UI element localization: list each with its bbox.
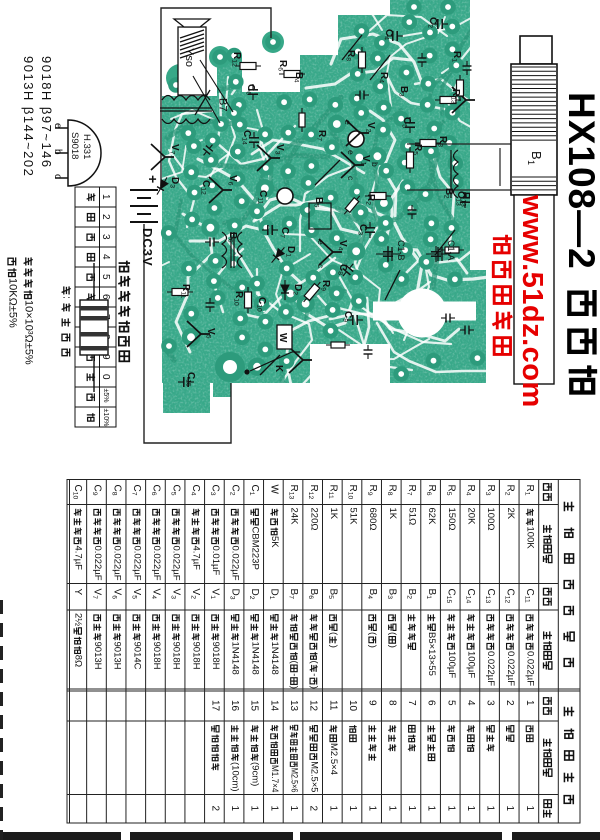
svg-text:2: 2: [504, 700, 515, 706]
svg-text:R: R: [446, 485, 457, 492]
svg-text:B7: B7: [216, 98, 228, 111]
svg-text:R: R: [367, 485, 378, 492]
svg-text:R: R: [504, 485, 515, 492]
svg-text:): ): [387, 645, 398, 648]
svg-text:11: 11: [523, 596, 530, 603]
svg-text:C: C: [279, 227, 290, 234]
svg-text:13: 13: [450, 96, 457, 104]
svg-text:Yso: Yso: [183, 48, 195, 67]
svg-text:1: 1: [367, 806, 378, 812]
svg-text:C: C: [241, 130, 252, 137]
svg-text:2: 2: [229, 492, 236, 496]
svg-text:0.022µF: 0.022µF: [505, 651, 516, 686]
svg-text:1N4148: 1N4148: [269, 642, 280, 675]
svg-text:W: W: [269, 485, 280, 495]
svg-text:3: 3: [229, 596, 236, 600]
svg-text:D: D: [229, 589, 240, 596]
svg-text:10: 10: [347, 492, 354, 500]
svg-text:1: 1: [100, 194, 111, 200]
svg-text:4: 4: [464, 492, 471, 496]
svg-text:5: 5: [412, 151, 419, 155]
svg-text:C: C: [229, 485, 240, 492]
svg-text:12: 12: [504, 596, 511, 604]
svg-text:6: 6: [227, 182, 234, 186]
svg-text:(: (: [367, 632, 378, 636]
svg-text:): ): [328, 645, 339, 648]
svg-text:6: 6: [150, 492, 157, 496]
svg-text:5K: 5K: [269, 536, 280, 548]
svg-text:R: R: [288, 485, 299, 492]
svg-text:C: C: [170, 485, 181, 492]
svg-text:9: 9: [366, 492, 373, 496]
svg-text:11: 11: [327, 700, 338, 711]
svg-text:1: 1: [386, 806, 397, 812]
svg-text:7: 7: [288, 595, 295, 599]
svg-text:2: 2: [100, 214, 111, 220]
svg-text:2½: 2½: [72, 613, 83, 626]
svg-text:M2.5×5: M2.5×5: [309, 761, 320, 792]
svg-text:7: 7: [169, 151, 176, 155]
svg-text:C: C: [504, 589, 515, 596]
svg-text:1: 1: [347, 806, 358, 812]
svg-text:2: 2: [189, 595, 196, 599]
svg-text:7: 7: [316, 137, 323, 141]
svg-text:C1-A: C1-A: [446, 240, 456, 261]
svg-text:6: 6: [245, 91, 252, 95]
svg-text:8: 8: [386, 700, 397, 706]
svg-text:9: 9: [320, 287, 327, 291]
svg-text:5: 5: [170, 492, 177, 496]
svg-text:4.7µF: 4.7µF: [72, 546, 83, 571]
svg-text:5: 5: [100, 274, 111, 280]
svg-text:4: 4: [337, 247, 344, 251]
svg-text:6: 6: [425, 492, 432, 496]
svg-text:24K: 24K: [289, 508, 300, 526]
svg-text:0.022µF: 0.022µF: [112, 546, 123, 581]
svg-text:7: 7: [406, 700, 417, 706]
svg-text:1K: 1K: [328, 508, 339, 520]
svg-text:2: 2: [504, 492, 511, 496]
svg-text:13: 13: [288, 700, 299, 712]
svg-text:100K: 100K: [525, 527, 536, 550]
svg-text:0.022µF: 0.022µF: [151, 546, 162, 581]
svg-text:5: 5: [313, 204, 320, 208]
svg-text:680Ω: 680Ω: [367, 508, 378, 531]
svg-text:C: C: [342, 311, 353, 318]
svg-text:62K: 62K: [426, 508, 437, 526]
svg-text:9018H: 9018H: [171, 642, 182, 670]
svg-text:C: C: [337, 264, 348, 271]
svg-text:9018H: 9018H: [151, 642, 162, 670]
svg-text:13: 13: [288, 492, 295, 500]
svg-text:3: 3: [386, 595, 393, 599]
svg-text:C: C: [249, 485, 260, 492]
svg-text:1: 1: [426, 806, 437, 812]
svg-text:1: 1: [524, 806, 535, 812]
svg-text:10×10³Ω±5%: 10×10³Ω±5%: [22, 300, 34, 365]
svg-text:2: 2: [405, 595, 412, 599]
svg-text:10: 10: [347, 700, 358, 712]
svg-text:9018H β97~146: 9018H β97~146: [39, 56, 54, 169]
svg-text:15: 15: [249, 700, 260, 712]
svg-text:1: 1: [360, 162, 367, 166]
svg-text:9018H: 9018H: [210, 642, 221, 670]
svg-text:1: 1: [465, 806, 476, 812]
svg-text:1: 1: [285, 253, 292, 257]
svg-text:2: 2: [248, 596, 255, 600]
svg-text:3: 3: [484, 492, 491, 496]
svg-text:C: C: [210, 485, 221, 492]
svg-text:R: R: [406, 485, 417, 492]
svg-text:R: R: [328, 485, 339, 492]
svg-text:51Ω: 51Ω: [407, 508, 418, 526]
svg-text:100µF: 100µF: [446, 651, 457, 678]
svg-text:1: 1: [485, 806, 496, 812]
svg-text:3: 3: [100, 234, 111, 240]
svg-text:10: 10: [71, 492, 78, 500]
svg-text:0.022µF: 0.022µF: [230, 546, 241, 581]
svg-text:1: 1: [524, 700, 535, 706]
svg-text:10KΩ±5%: 10KΩ±5%: [6, 278, 18, 328]
svg-text:9018H: 9018H: [190, 642, 201, 670]
svg-text:-: -: [308, 673, 319, 676]
svg-text:0.022µF: 0.022µF: [525, 651, 536, 686]
svg-text:B5×13×55: B5×13×55: [426, 632, 437, 676]
svg-text:5: 5: [130, 595, 137, 599]
svg-text:6: 6: [227, 239, 234, 243]
svg-text:C1-B: C1-B: [396, 240, 406, 261]
svg-text:8: 8: [345, 57, 352, 61]
svg-text:4: 4: [189, 492, 196, 496]
svg-text:M2.5×4: M2.5×4: [328, 743, 339, 775]
svg-text:C: C: [111, 485, 122, 492]
svg-text:3: 3: [169, 184, 176, 188]
svg-text:4: 4: [366, 595, 373, 599]
svg-text:e: e: [316, 240, 326, 245]
svg-text:220Ω: 220Ω: [308, 508, 319, 531]
svg-text:12: 12: [200, 187, 207, 195]
svg-text:Y: Y: [72, 589, 83, 596]
svg-text:0.022µF: 0.022µF: [171, 546, 182, 581]
svg-text:5: 5: [445, 700, 456, 706]
svg-text:12: 12: [308, 700, 319, 712]
svg-text:C: C: [92, 485, 103, 492]
svg-text:17: 17: [209, 700, 220, 712]
svg-text:9014C: 9014C: [131, 642, 142, 670]
svg-text:(: (: [289, 661, 300, 665]
svg-text:14: 14: [268, 700, 279, 712]
svg-text:1: 1: [229, 806, 240, 812]
svg-text:0.022µF: 0.022µF: [485, 651, 496, 686]
svg-text:4: 4: [383, 36, 390, 40]
svg-text:D: D: [285, 246, 296, 253]
svg-text:C: C: [72, 485, 83, 492]
svg-text:1: 1: [288, 806, 299, 812]
svg-text:2: 2: [292, 291, 299, 295]
svg-text:7: 7: [91, 595, 98, 599]
svg-text:8: 8: [386, 492, 393, 496]
svg-text:(9cm): (9cm): [249, 762, 260, 786]
svg-text:8: 8: [337, 271, 344, 275]
svg-text:15: 15: [445, 596, 452, 604]
svg-text:(: (: [328, 632, 339, 636]
svg-text:5: 5: [327, 595, 334, 599]
svg-text:0.022µF: 0.022µF: [92, 546, 103, 581]
svg-text:2: 2: [443, 195, 450, 199]
svg-text:W: W: [277, 333, 288, 343]
svg-text:(: (: [387, 632, 398, 636]
svg-text:20K: 20K: [466, 508, 477, 526]
svg-text:1: 1: [327, 806, 338, 812]
svg-text:5: 5: [445, 492, 452, 496]
svg-text:C: C: [185, 372, 196, 379]
svg-text:3: 3: [437, 143, 444, 147]
svg-text:R: R: [465, 485, 476, 492]
svg-text:b: b: [370, 162, 380, 167]
svg-text:C: C: [383, 29, 394, 36]
svg-text:2: 2: [427, 24, 434, 28]
svg-text:): ): [308, 686, 319, 689]
svg-text:16: 16: [229, 700, 240, 712]
svg-text:D: D: [269, 589, 280, 596]
svg-text:1: 1: [526, 160, 536, 165]
svg-text:(10cm): (10cm): [230, 762, 241, 792]
svg-text:5: 5: [401, 124, 408, 128]
svg-text:1: 1: [451, 58, 458, 62]
svg-text:6: 6: [277, 67, 284, 71]
svg-text:3: 3: [274, 151, 281, 155]
svg-text:±5%: ±5%: [102, 389, 109, 403]
svg-text:9: 9: [91, 492, 98, 496]
svg-text:R: R: [308, 485, 319, 492]
svg-text:12: 12: [231, 59, 238, 67]
svg-text:1K: 1K: [387, 508, 398, 520]
svg-text:6: 6: [100, 294, 111, 300]
svg-text:15: 15: [185, 379, 192, 387]
svg-text:www.51dz.com: www.51dz.com: [516, 194, 548, 408]
svg-text:HX108—2: HX108—2: [561, 92, 600, 270]
svg-text:C: C: [131, 485, 142, 492]
svg-text:10: 10: [233, 298, 240, 306]
svg-text:1: 1: [425, 595, 432, 599]
svg-text:C: C: [401, 117, 412, 124]
svg-text:0.022µF: 0.022µF: [131, 546, 142, 581]
svg-text:e: e: [346, 150, 356, 155]
svg-text:±10%: ±10%: [102, 409, 109, 427]
svg-text:1: 1: [406, 806, 417, 812]
svg-text:1: 1: [523, 492, 530, 496]
svg-text:M1.7×4: M1.7×4: [270, 765, 281, 793]
svg-text:C: C: [427, 17, 438, 24]
svg-text:C: C: [200, 180, 211, 187]
svg-text:K: K: [273, 365, 284, 373]
svg-text:1: 1: [504, 806, 515, 812]
svg-text:100µF: 100µF: [466, 651, 477, 678]
svg-text:): ): [367, 645, 378, 648]
svg-text:1N4148: 1N4148: [230, 642, 241, 675]
svg-text:C: C: [256, 297, 267, 304]
svg-text:14: 14: [464, 596, 471, 604]
svg-text:1N4148: 1N4148: [249, 642, 260, 675]
svg-text:6: 6: [426, 700, 437, 706]
svg-text:-: -: [289, 673, 300, 676]
svg-text:13: 13: [484, 596, 491, 604]
svg-text:C: C: [151, 485, 162, 492]
svg-text:M2.5×6: M2.5×6: [289, 768, 300, 793]
svg-text:1: 1: [249, 806, 260, 812]
svg-text::: :: [60, 296, 72, 299]
svg-text:C: C: [446, 589, 457, 596]
svg-text:11: 11: [180, 291, 187, 298]
svg-text:(: (: [308, 661, 319, 665]
svg-text:9013H: 9013H: [92, 642, 103, 670]
svg-text:13: 13: [460, 199, 467, 207]
svg-text:8: 8: [111, 492, 118, 496]
svg-text:e: e: [343, 120, 353, 125]
svg-text:CBM223P: CBM223P: [249, 527, 260, 570]
svg-text:100Ω: 100Ω: [485, 508, 496, 531]
svg-text:C: C: [465, 589, 476, 596]
svg-text:2: 2: [365, 201, 372, 205]
svg-text:S9018: S9018: [69, 132, 80, 159]
svg-text:D: D: [249, 589, 260, 596]
svg-text:H.331: H.331: [81, 134, 92, 159]
svg-text:4.7µF: 4.7µF: [190, 546, 201, 571]
svg-text:R: R: [524, 485, 535, 492]
svg-text:10: 10: [256, 304, 263, 312]
svg-text:C: C: [190, 485, 201, 492]
svg-text:D: D: [169, 177, 180, 184]
svg-text:7: 7: [130, 492, 137, 496]
svg-text:DC3V: DC3V: [140, 228, 155, 267]
svg-text:9: 9: [342, 318, 349, 322]
svg-text:9013H: 9013H: [112, 642, 123, 670]
svg-text:7: 7: [405, 492, 412, 496]
svg-text:R: R: [347, 485, 358, 492]
svg-text:): ): [289, 686, 300, 689]
svg-text:2: 2: [365, 129, 372, 133]
svg-text:2: 2: [209, 806, 220, 812]
svg-text:3: 3: [170, 595, 177, 599]
svg-text:4: 4: [100, 254, 111, 260]
svg-text:c: c: [52, 174, 63, 179]
svg-text:150Ω: 150Ω: [446, 508, 457, 531]
svg-text:1: 1: [268, 806, 279, 812]
svg-text:11: 11: [257, 197, 264, 204]
svg-text:B: B: [529, 151, 544, 160]
svg-text:4: 4: [293, 79, 300, 83]
svg-text:5: 5: [205, 335, 212, 339]
svg-text:0: 0: [100, 374, 111, 380]
svg-text:14: 14: [241, 137, 248, 145]
svg-text:11: 11: [327, 492, 334, 499]
svg-text:4: 4: [465, 700, 476, 706]
svg-text:6: 6: [111, 595, 118, 599]
svg-text:2K: 2K: [505, 508, 516, 520]
svg-text:0.01µF: 0.01µF: [210, 546, 221, 576]
svg-text:9: 9: [367, 700, 378, 706]
svg-text:C: C: [485, 589, 496, 596]
svg-text:C: C: [357, 224, 368, 231]
svg-text:4: 4: [378, 79, 385, 83]
svg-text:3: 3: [357, 231, 364, 235]
svg-text:3: 3: [209, 492, 216, 496]
svg-text:C: C: [257, 190, 268, 197]
svg-text:7: 7: [279, 234, 286, 238]
svg-text:51K: 51K: [348, 508, 359, 526]
svg-text:3: 3: [398, 93, 405, 97]
svg-text:4: 4: [150, 595, 157, 599]
svg-text:3: 3: [485, 700, 496, 706]
svg-text:1: 1: [445, 806, 456, 812]
svg-text:R: R: [426, 485, 437, 492]
svg-text:R: R: [485, 485, 496, 492]
svg-text:12: 12: [307, 492, 314, 500]
svg-text:1: 1: [248, 492, 255, 496]
svg-text:D: D: [292, 284, 303, 291]
svg-text:2: 2: [308, 806, 319, 812]
svg-text:1: 1: [268, 596, 275, 600]
svg-text:9013H β144~202: 9013H β144~202: [21, 56, 36, 177]
svg-text:1: 1: [209, 595, 216, 599]
svg-text:8Ω: 8Ω: [72, 655, 83, 667]
svg-text:C: C: [245, 84, 256, 91]
svg-text:6: 6: [307, 595, 314, 599]
svg-text:+: +: [145, 175, 161, 183]
svg-text:R: R: [387, 485, 398, 492]
svg-text:C: C: [524, 589, 535, 596]
